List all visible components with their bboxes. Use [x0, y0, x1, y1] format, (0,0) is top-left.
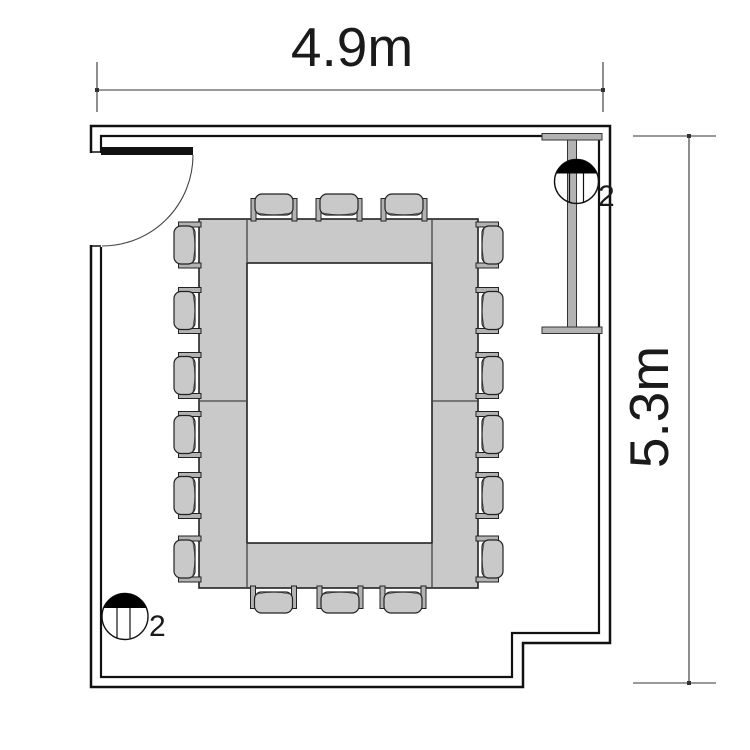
chair [381, 194, 427, 221]
chair [476, 536, 503, 582]
chair [251, 586, 297, 613]
chair [174, 222, 201, 268]
chair [380, 586, 426, 613]
chair [174, 473, 201, 519]
outlet-wall-marker [556, 159, 597, 173]
chair [174, 353, 201, 399]
outlet-count-label: 2 [598, 180, 615, 213]
outlet-count-label: 2 [149, 610, 166, 643]
chair [317, 586, 363, 613]
chair [476, 473, 503, 519]
dimension-dot [601, 88, 605, 92]
height-label: 5.3m [618, 346, 680, 468]
door-jamb-cap [91, 152, 101, 246]
chair [316, 194, 362, 221]
chair [476, 353, 503, 399]
chair [251, 194, 297, 221]
floor-plan: 4.9m 5.3m [0, 0, 750, 750]
chair [476, 412, 503, 458]
table-inner-opening [247, 263, 432, 543]
floor-plan-svg: 4.9m 5.3m [0, 0, 750, 750]
dimension-dot [687, 134, 691, 138]
dimension-dot [95, 88, 99, 92]
dimension-dot [687, 681, 691, 685]
outlet-symbol-top-right: 2 [555, 159, 615, 213]
chair [174, 536, 201, 582]
chair [174, 412, 201, 458]
screen-cap-top [542, 134, 602, 141]
chair [476, 222, 503, 268]
chair [476, 288, 503, 334]
screen-cap-bottom [542, 327, 602, 334]
conference-table [199, 219, 478, 588]
door-leaf [101, 147, 193, 155]
outlet-wall-marker [104, 593, 147, 608]
chair [174, 288, 201, 334]
outlet-symbol-bottom-left: 2 [102, 593, 166, 643]
width-label: 4.9m [291, 16, 413, 78]
